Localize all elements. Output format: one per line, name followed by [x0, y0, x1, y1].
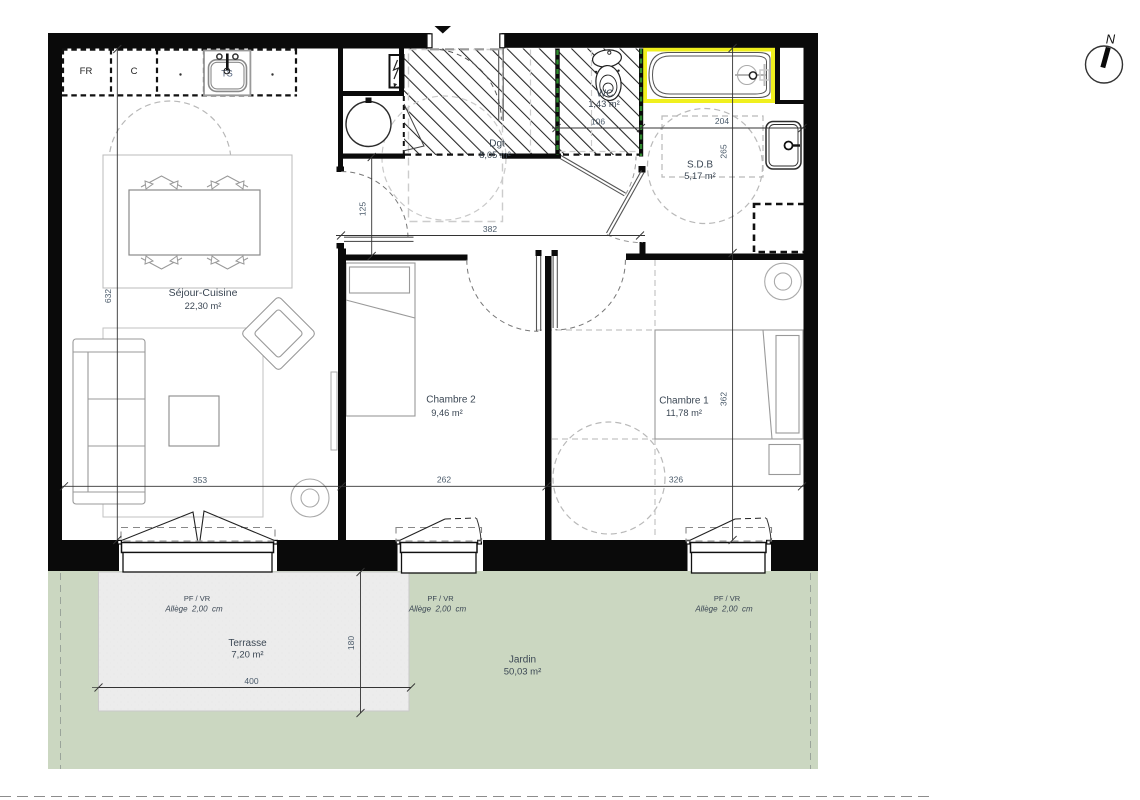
svg-text:1,43 m²: 1,43 m²: [588, 99, 620, 109]
svg-text:WC: WC: [597, 89, 614, 100]
svg-text:FR: FR: [80, 66, 93, 77]
svg-text:22,30 m²: 22,30 m²: [185, 301, 222, 311]
svg-text:204: 204: [715, 116, 729, 126]
svg-text:PF / VR: PF / VR: [427, 594, 454, 603]
svg-text:Allège 2,00 cm: Allège 2,00 cm: [694, 605, 753, 614]
svg-text:Chambre 2: Chambre 2: [426, 395, 476, 406]
svg-text:9,46 m²: 9,46 m²: [431, 408, 463, 418]
svg-text:Terrasse: Terrasse: [228, 638, 267, 649]
svg-text:Chambre 1: Chambre 1: [659, 396, 709, 407]
svg-text:11,78 m²: 11,78 m²: [666, 408, 702, 418]
svg-text:8,05 m²: 8,05 m²: [479, 150, 511, 160]
svg-text:632: 632: [103, 289, 113, 303]
svg-text:265: 265: [719, 144, 729, 158]
svg-text:Allège 2,00 cm: Allège 2,00 cm: [164, 605, 223, 614]
svg-text:50,03 m²: 50,03 m²: [504, 667, 542, 678]
svg-text:125: 125: [358, 202, 368, 216]
svg-text:C: C: [131, 66, 138, 77]
svg-text:353: 353: [193, 475, 207, 485]
svg-text:262: 262: [437, 475, 451, 485]
svg-text:106: 106: [591, 117, 605, 127]
svg-text:PF / VR: PF / VR: [184, 594, 211, 603]
svg-text:Allège 2,00 cm: Allège 2,00 cm: [408, 605, 467, 614]
svg-text:7,20 m²: 7,20 m²: [231, 650, 263, 661]
svg-text:382: 382: [483, 224, 497, 234]
svg-text:Dgt: Dgt: [489, 139, 505, 150]
svg-text:Jardin: Jardin: [509, 655, 536, 666]
svg-text:S.D.B: S.D.B: [687, 160, 713, 171]
svg-text:Séjour-Cuisine: Séjour-Cuisine: [169, 287, 238, 299]
svg-text:180: 180: [346, 636, 356, 650]
svg-text:5,17 m²: 5,17 m²: [684, 171, 716, 181]
svg-text:PF / VR: PF / VR: [714, 594, 741, 603]
svg-text:N: N: [1106, 32, 1116, 47]
svg-text:326: 326: [669, 475, 683, 485]
svg-text:400: 400: [244, 676, 258, 686]
svg-text:362: 362: [719, 392, 729, 406]
